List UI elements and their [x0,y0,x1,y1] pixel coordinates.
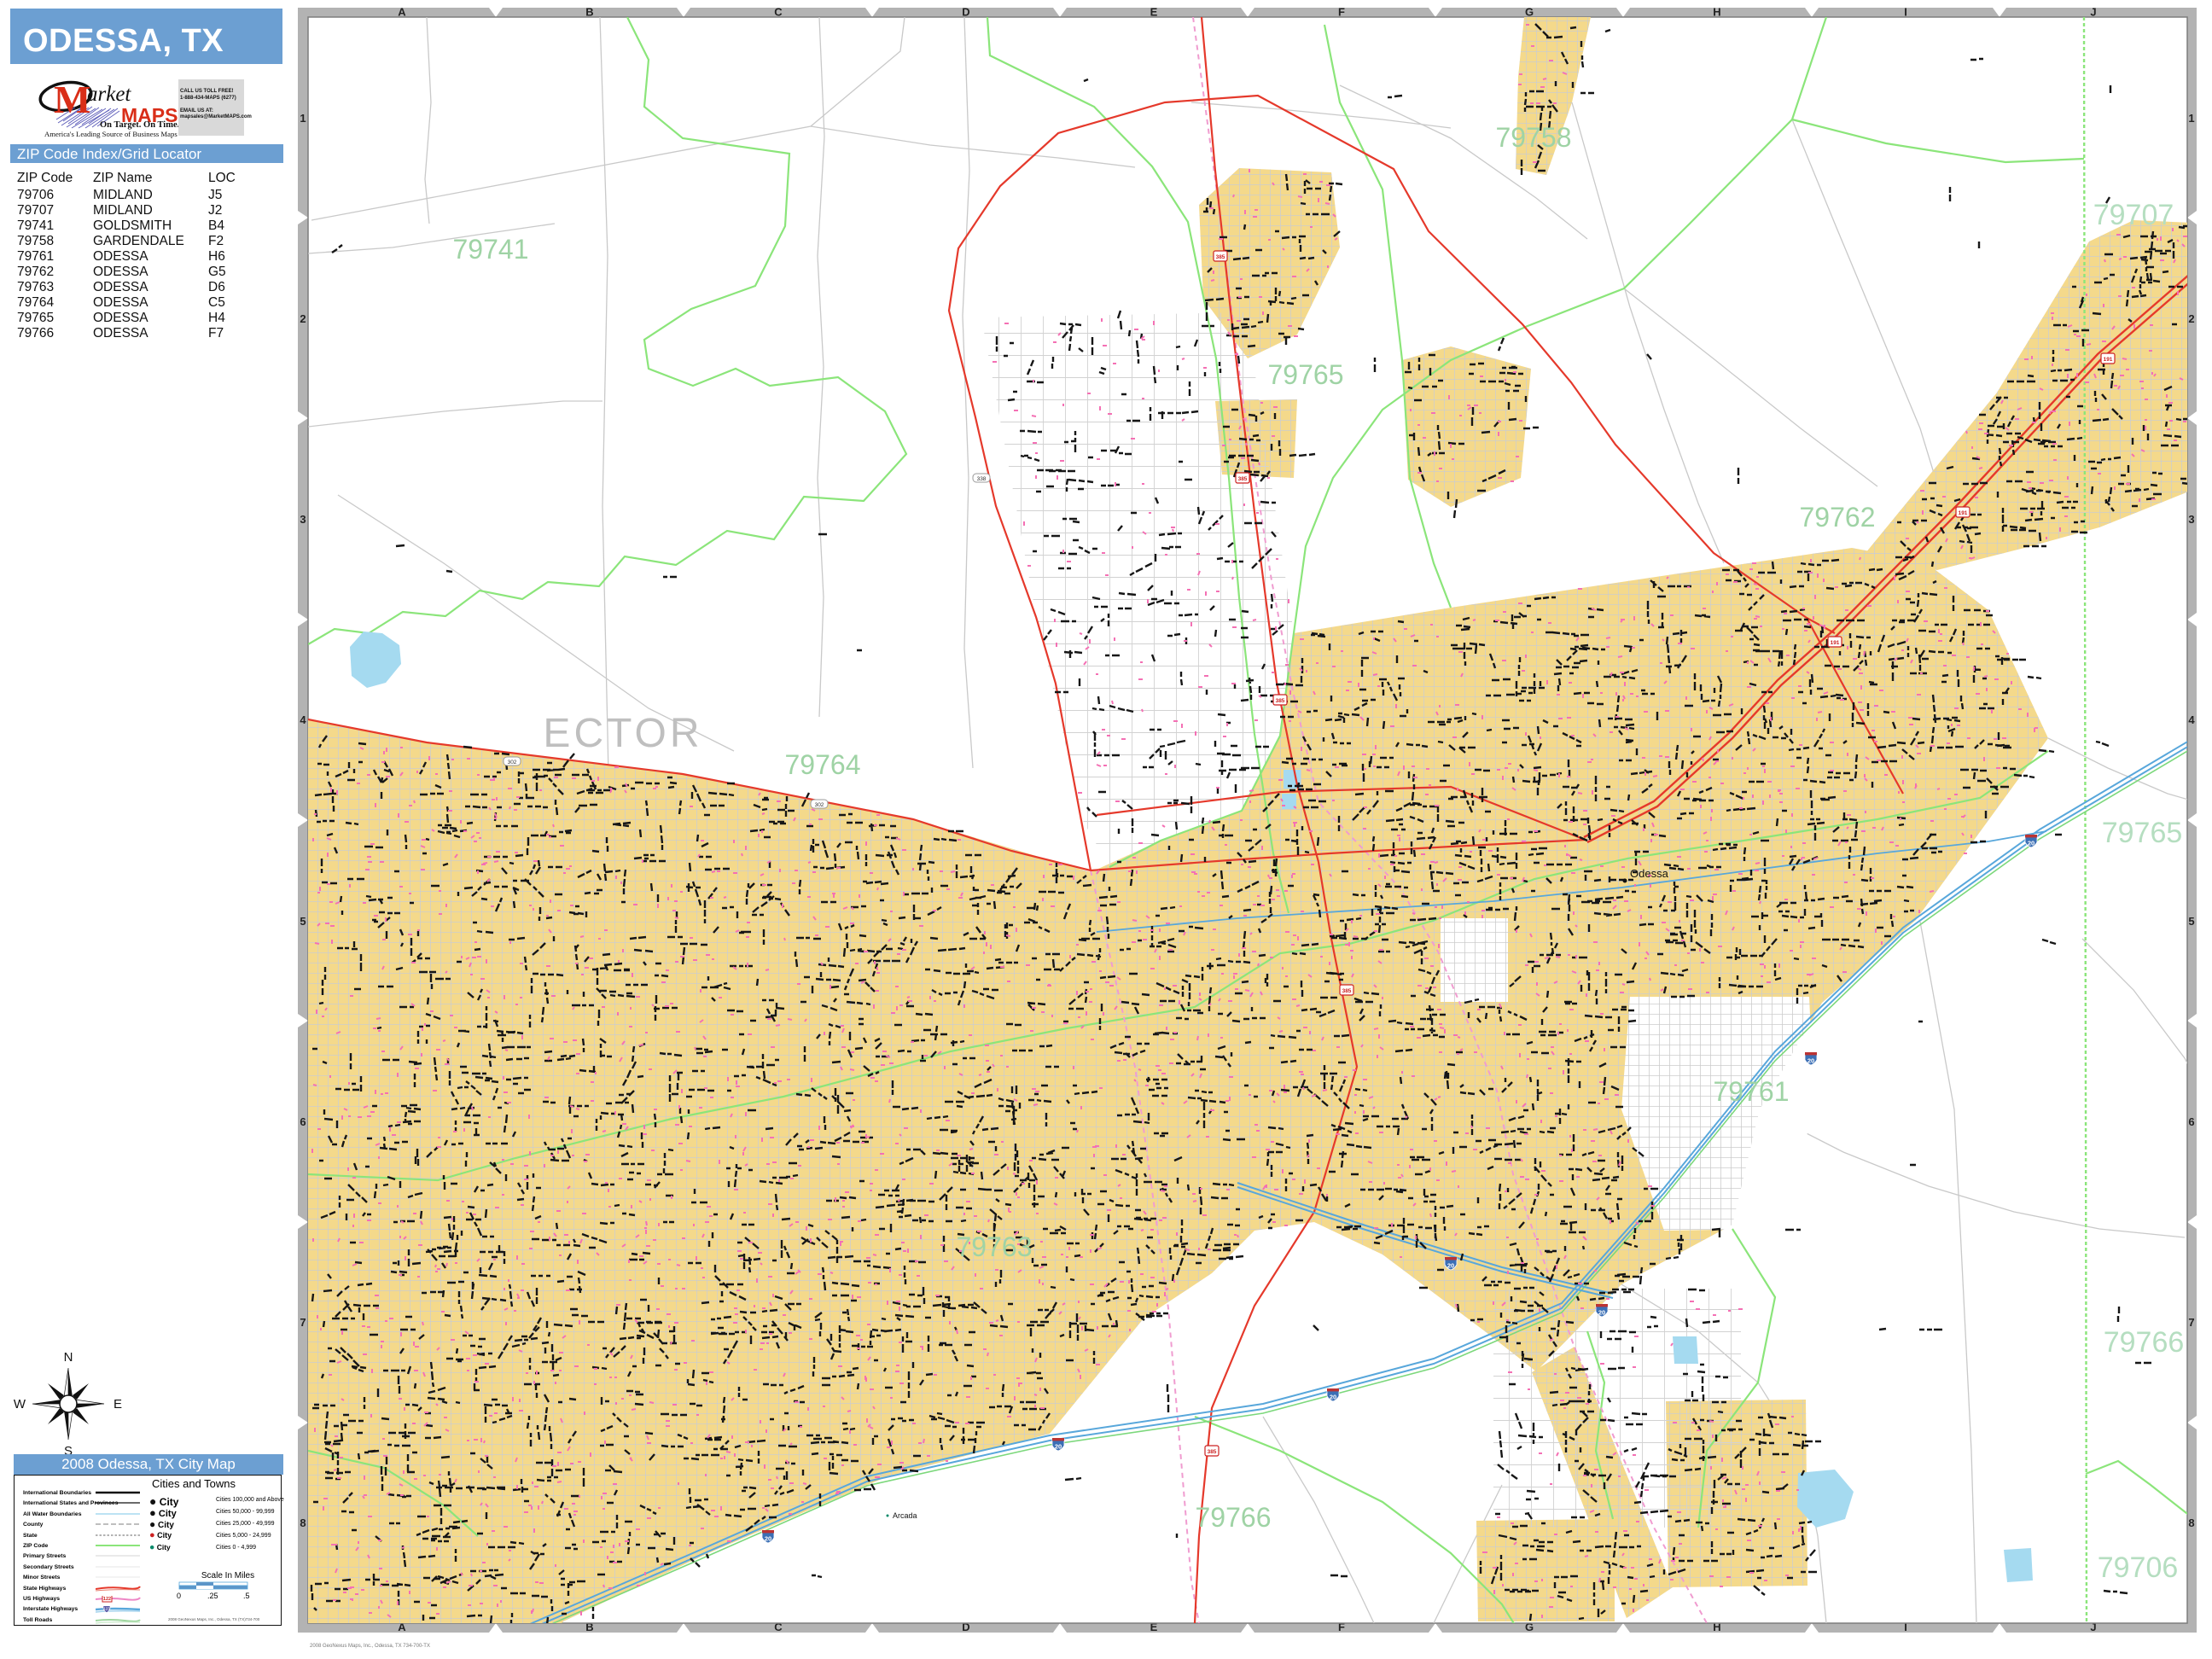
svg-text:79765: 79765 [2102,817,2183,849]
svg-text:7: 7 [2188,1316,2194,1329]
svg-text:8: 8 [2188,1516,2194,1529]
svg-text:arket: arket [87,83,131,106]
svg-text:79761: 79761 [1714,1076,1790,1107]
svg-text:79764: 79764 [785,749,861,780]
svg-text:385: 385 [1276,698,1285,704]
svg-text:20: 20 [1330,1394,1336,1401]
svg-text:America's Leading Source of Bu: America's Leading Source of Business Map… [44,130,178,138]
svg-text:79707: 79707 [2093,199,2174,231]
svg-text:6: 6 [2188,1115,2194,1128]
svg-text:2: 2 [2188,312,2194,325]
svg-text:338: 338 [977,476,987,482]
svg-text:191: 191 [1959,510,1968,516]
svg-text:1: 1 [2188,112,2194,125]
svg-text:79758: 79758 [1496,122,1572,153]
svg-text:E: E [114,1397,122,1412]
svg-text:5: 5 [2188,915,2194,928]
svg-text:79763: 79763 [957,1231,1033,1262]
svg-text:4: 4 [2188,713,2195,726]
svg-text:7: 7 [300,1316,306,1329]
svg-text:191: 191 [2104,357,2113,363]
svg-text:8: 8 [300,1516,306,1529]
svg-text:W: W [14,1397,26,1412]
svg-text:20: 20 [765,1535,771,1543]
svg-text:3: 3 [300,513,306,526]
svg-text:79741: 79741 [453,234,529,265]
svg-text:385: 385 [1238,476,1248,482]
svg-text:20: 20 [1055,1443,1062,1451]
svg-text:1: 1 [300,112,306,125]
svg-text:N: N [64,1351,73,1365]
svg-text:385: 385 [1208,1449,1217,1455]
svg-text:123: 123 [103,1607,110,1611]
svg-text:302: 302 [815,802,824,808]
svg-text:M: M [54,78,90,121]
svg-text:20: 20 [1598,1309,1605,1317]
svg-text:20: 20 [1447,1262,1454,1270]
svg-text:Arcada: Arcada [893,1511,917,1520]
svg-text:385: 385 [1216,254,1225,260]
svg-text:79762: 79762 [1800,502,1876,533]
svg-text:79766: 79766 [1196,1502,1272,1533]
svg-text:385: 385 [1342,988,1352,994]
svg-text:5: 5 [300,915,306,928]
svg-text:20: 20 [2028,840,2034,847]
svg-text:79706: 79706 [2098,1551,2179,1584]
svg-text:79766: 79766 [2104,1326,2185,1359]
svg-text:On Target. On Time.: On Target. On Time. [100,120,180,130]
svg-text:ECTOR: ECTOR [543,711,702,756]
svg-text:Odessa: Odessa [1630,867,1669,880]
svg-text:191: 191 [1831,640,1840,646]
svg-text:2: 2 [300,312,306,325]
svg-text:302: 302 [508,760,517,765]
svg-text:20: 20 [1807,1057,1814,1065]
svg-text:6: 6 [300,1115,306,1128]
svg-text:79765: 79765 [1268,359,1344,390]
svg-text:4: 4 [300,713,306,726]
svg-text:122: 122 [103,1597,111,1602]
svg-text:3: 3 [2188,513,2194,526]
